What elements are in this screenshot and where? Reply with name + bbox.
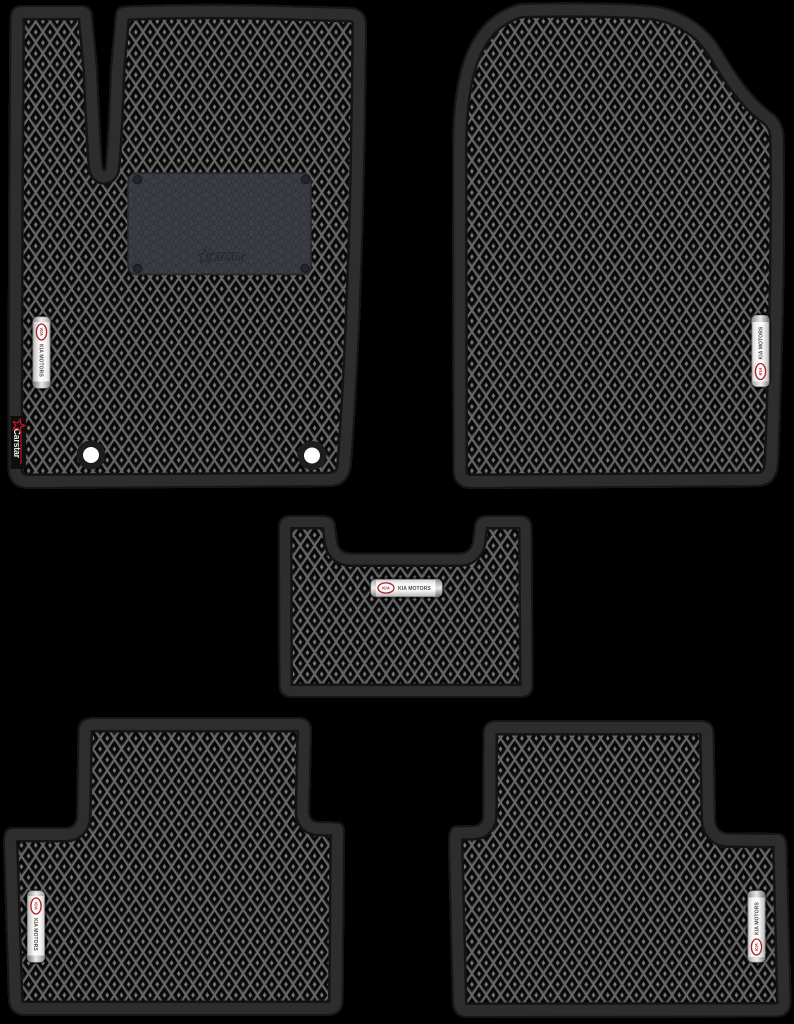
svg-text:Carstar: Carstar <box>12 429 22 459</box>
